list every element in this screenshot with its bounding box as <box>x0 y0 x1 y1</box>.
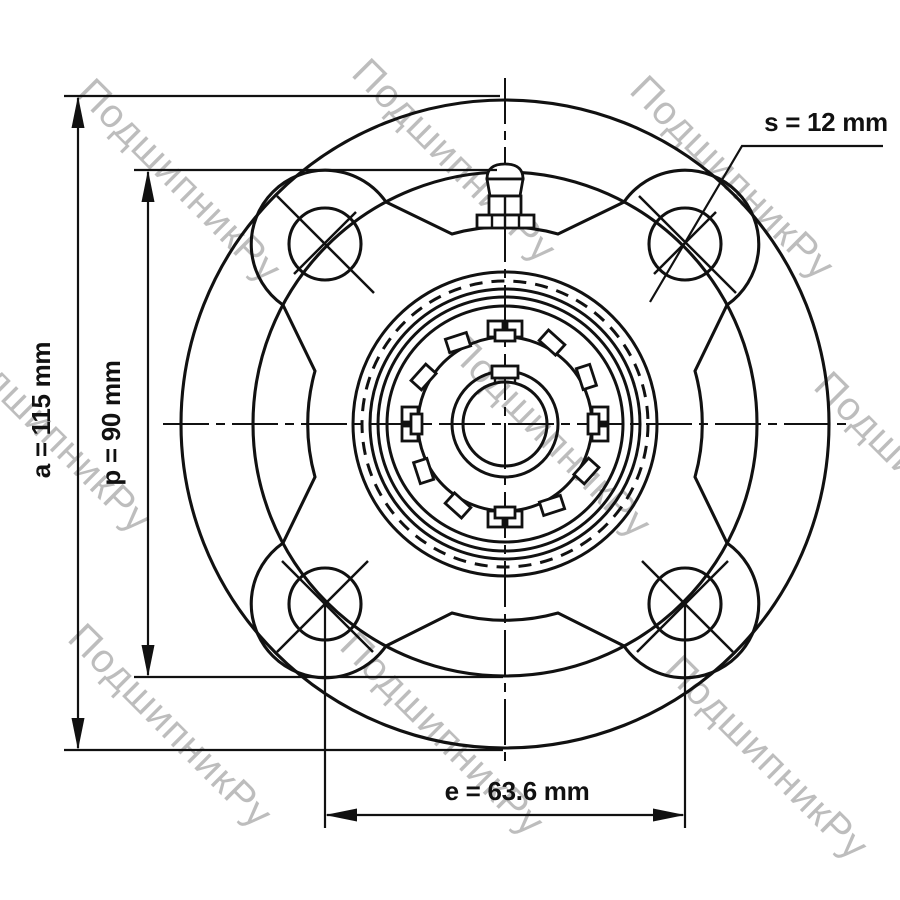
collar-tab <box>414 458 434 483</box>
collar-tab <box>539 330 565 355</box>
watermark-text: ПодшипникРу <box>344 50 565 271</box>
watermark-layer: ПодшипникРу ПодшипникРу ПодшипникРу Подш… <box>0 50 900 868</box>
dimension-label-s: s = 12 mm <box>764 107 888 137</box>
arrow-right <box>653 809 685 822</box>
grease-fitting-ball <box>487 164 523 179</box>
watermark-text: ПодшипникРу <box>656 647 877 868</box>
arrow-down <box>72 718 85 750</box>
technical-drawing-page: ПодшипникРу ПодшипникРу ПодшипникРу Подш… <box>0 0 900 900</box>
watermark-text: ПодшипникРу <box>0 320 160 541</box>
collar-tab <box>445 493 471 518</box>
collar-tab <box>576 364 596 389</box>
dimension-label-a: a = 115 mm <box>26 342 56 479</box>
dimension-label-p: p = 90 mm <box>96 360 126 485</box>
technical-drawing-canvas: ПодшипникРу ПодшипникРу ПодшипникРу Подш… <box>0 0 900 900</box>
dimension-label-e: e = 63.6 mm <box>445 776 590 806</box>
watermark-text: ПодшипникРу <box>332 623 553 844</box>
watermark-text: ПодшипникРу <box>69 70 290 291</box>
collar-tab <box>539 495 564 515</box>
watermark-text: ПодшипникРу <box>806 363 900 584</box>
keyway-notch <box>492 366 518 378</box>
collar-tab <box>411 364 436 390</box>
grease-fitting-taper <box>487 179 523 196</box>
bolt-hole-top-right <box>639 196 736 293</box>
bolt-hole-top-left <box>277 196 374 293</box>
watermark-text: ПодшипникРу <box>60 615 281 836</box>
arrow-left <box>325 809 357 822</box>
